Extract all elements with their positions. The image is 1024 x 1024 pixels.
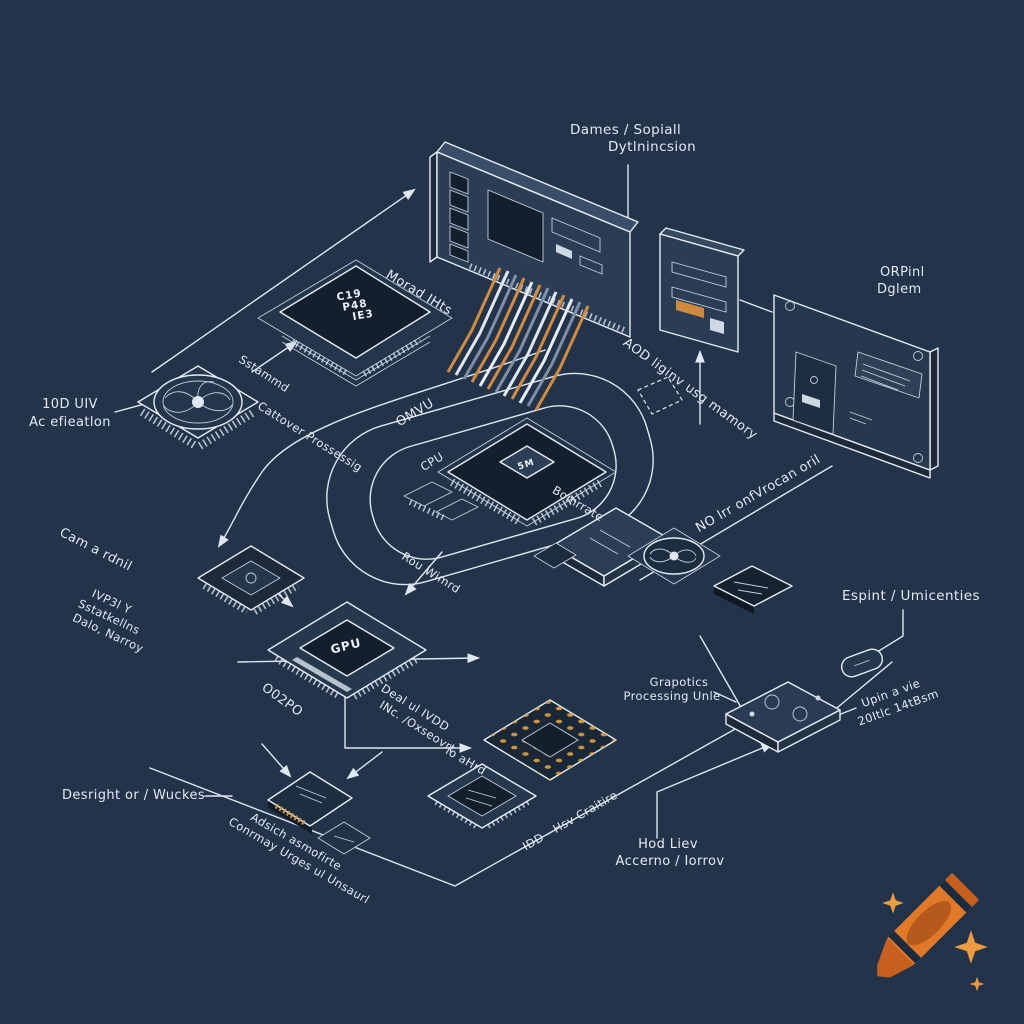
label-orpinl: ORPinl <box>880 265 925 280</box>
label-tenduv: 10D UIV <box>42 397 98 412</box>
label-desright: Desright or / Wuckes <box>62 788 205 803</box>
expansion-card <box>660 228 744 352</box>
fan-hub <box>192 396 204 408</box>
label-grapotics: Processing Unle <box>623 689 720 703</box>
label-dames: Dytlnincsion <box>608 139 696 155</box>
label-grapotics: Grapotics <box>650 675 709 689</box>
fan-hub <box>670 552 679 561</box>
label-orpinl: Dglem <box>877 282 922 297</box>
label-dames: Dames / Sopiall <box>570 122 681 138</box>
label-espint: Espint / Umicenties <box>842 588 980 604</box>
label-hod: Accerno / Iorrov <box>616 854 725 869</box>
isometric-hardware-diagram: C19 P48 IE3 GPU 5M <box>0 0 1024 1024</box>
mounted-card <box>793 352 836 434</box>
label-hod: Hod Liev <box>638 837 698 852</box>
label-tenduv: Ac efieatlon <box>29 415 111 430</box>
